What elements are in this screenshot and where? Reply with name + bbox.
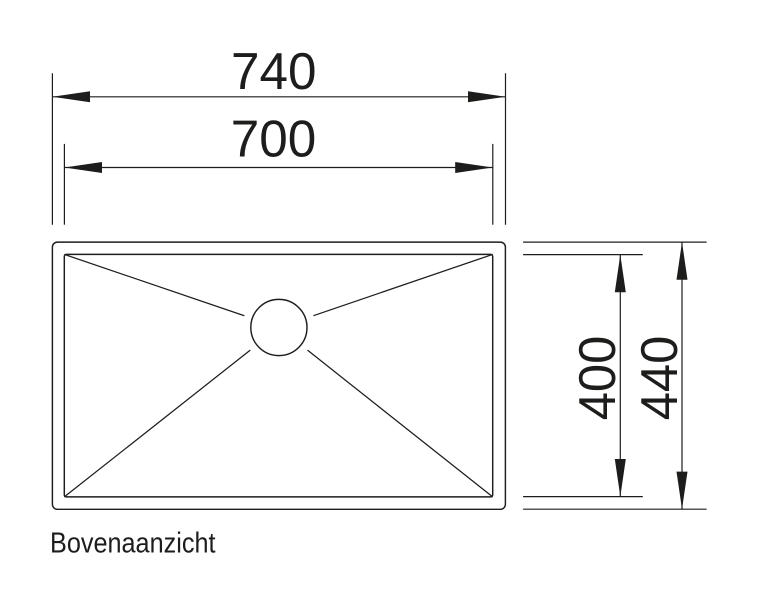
svg-text:700: 700 xyxy=(231,111,317,169)
svg-text:740: 740 xyxy=(231,43,317,101)
svg-text:Bovenaanzicht: Bovenaanzicht xyxy=(50,528,216,560)
svg-text:440: 440 xyxy=(631,336,689,421)
svg-text:400: 400 xyxy=(569,336,627,421)
